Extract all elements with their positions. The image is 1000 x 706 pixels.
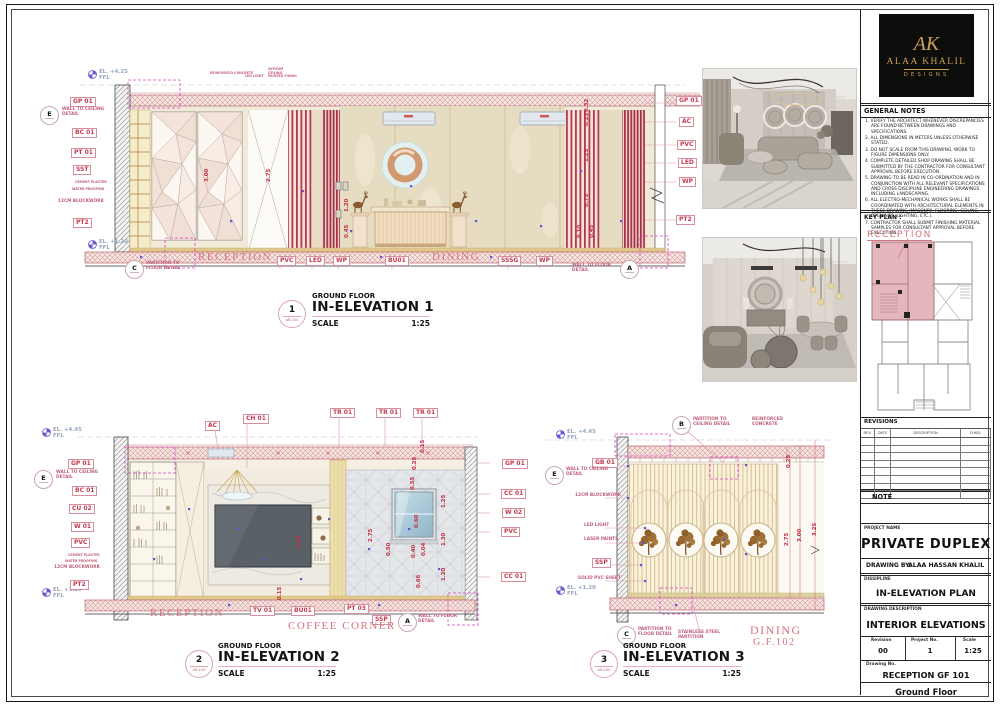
note-item: 1. VERIFY THE ARCHITECT WHENEVER DISCREP…	[865, 119, 989, 135]
reinforced-note: REINFORCED CONCRETE	[752, 418, 794, 428]
laser-note: LASER PAINTS	[584, 538, 618, 543]
material-tag-gp01: GP 01	[502, 459, 528, 469]
material-tag-bu01: BU01	[385, 256, 409, 266]
ceiling-note: GYPSUM CEILING PAINTED FINISH	[268, 68, 298, 79]
dimension: 3.00	[797, 529, 803, 542]
material-tag-pvc: PVC	[501, 527, 520, 537]
level-icon	[556, 586, 565, 595]
material-tag-led: LED	[306, 256, 325, 266]
tiny-note: WATER PROOFING	[65, 560, 97, 564]
detail-note: PARTITION TO FLOOR DETAIL	[146, 262, 194, 272]
elevation1-title: GROUND FLOOR IN-ELEVATION 1 SCALE1:25	[312, 292, 434, 328]
dimension: 0.55	[410, 477, 416, 490]
material-tag-bc01: BC 01	[72, 486, 97, 496]
note-item: 5. DRAWING TO BE READ IN CO-ORDINATION A…	[865, 176, 989, 197]
dimension: 0.40	[411, 545, 417, 558]
material-tag-pt01: PT 01	[71, 148, 96, 158]
detail-circle-e: E	[545, 466, 564, 485]
dimension: 1.30	[441, 533, 447, 546]
detail-circle-e: E	[40, 106, 59, 125]
company-logo: AK ALAA KHALIL DESIGNS	[879, 14, 974, 97]
material-tag-bu01: BU01	[291, 606, 315, 616]
drawing-no-value: RECEPTION GF 101	[861, 670, 991, 680]
dimension: 0.45	[344, 225, 350, 238]
dimension: 1.20	[344, 199, 350, 212]
render-photo-living	[702, 68, 857, 209]
project-no-value: 1	[905, 647, 955, 655]
detail-note: PARTITION TO CEILING DETAIL	[693, 418, 745, 428]
detail-note: WALL TO CEILING DETAIL	[56, 471, 106, 481]
dimension: 3.25	[812, 523, 818, 536]
material-tag-wp: WP	[536, 256, 553, 266]
room-label-coffee-corner: COFFEE CORNER	[288, 620, 396, 632]
level-icon	[42, 428, 51, 437]
material-tag-ac: AC	[679, 117, 694, 127]
dimension: 1.61	[296, 535, 302, 548]
dimension: 0.15	[420, 440, 426, 453]
material-tag-bc01: BC 01	[72, 128, 97, 138]
dimension: 1.25	[584, 149, 590, 162]
revision-row	[861, 438, 991, 446]
blockwork-note: 12CM BLOCKWORK	[575, 494, 621, 499]
material-tag-tr01: TR 01	[376, 408, 401, 418]
dimension: 0.15	[277, 587, 283, 600]
dimension: 0.50	[386, 543, 392, 556]
room-label-reception: RECEPTION	[150, 607, 224, 619]
material-tag-tv01: TV 01	[250, 606, 275, 616]
rev-col: REV.	[861, 429, 875, 437]
dimension: 0.10	[577, 225, 583, 238]
material-tag-pt2: PT2	[676, 215, 695, 225]
scale-value: 1:25	[411, 319, 430, 328]
project-no-cell: Project No. 1	[905, 636, 956, 660]
dimension: 0.60	[414, 515, 420, 528]
elevation2-drawing	[78, 408, 494, 634]
revision-row	[861, 476, 991, 484]
level-ffl: FFL	[99, 76, 128, 82]
project-no-label: Project No.	[911, 638, 938, 643]
general-notes-title: GENERAL NOTES	[864, 107, 926, 115]
material-tag-pt2: PT2	[73, 218, 92, 228]
tiny-note: CEMENT PLASTER	[68, 554, 100, 558]
level-marker: EL. +1.20FFL	[556, 586, 596, 598]
sheet-floor: Ground Floor	[861, 687, 991, 697]
room-label-dining: DINING	[432, 251, 480, 263]
dimension: 3.00	[204, 169, 210, 182]
material-tag-cc01: CC 01	[501, 489, 526, 499]
detail-circle-a: A	[398, 613, 417, 632]
material-tag-pvc: PVC	[677, 140, 696, 150]
room-number: G.F.102	[753, 637, 795, 648]
elevation1-drawing	[80, 70, 702, 276]
scale-cell: Scale 1:25	[955, 636, 991, 660]
render-photo-dining-image	[703, 238, 856, 381]
material-tag-sst: SST	[73, 165, 91, 175]
note-item: 3. DO NOT SCALE FROM THIS DRAWING, WORK …	[865, 148, 989, 159]
ss-partition-note: STAINLESS STEEL PARTITION	[678, 631, 724, 641]
drawing-sheet: EL. +4.25FFL EL. +1.20FFL GP 01 E WALL T…	[0, 0, 1000, 706]
elevation3-title-circle: 3 AR-100	[590, 650, 618, 678]
level-icon	[556, 430, 565, 439]
revision-row	[861, 461, 991, 469]
revisions-table: REV. DATE DESCRIPTION CHKD.	[861, 428, 991, 499]
blockwork-note: 12CM BLOCKWORK	[58, 200, 104, 205]
material-tag-led: LED	[678, 158, 697, 168]
material-tag-cu02: CU 02	[69, 504, 95, 514]
room-label-reception: RECEPTION	[198, 251, 272, 263]
note-item: 4. COMPLETE DETAILED SHOP DRAWING SHALL …	[865, 159, 989, 175]
scale-label: Scale	[963, 638, 976, 643]
dimension: 0.75	[584, 194, 590, 207]
material-tag-ac: AC	[205, 421, 220, 431]
material-tag-ch01: CH 01	[243, 414, 269, 424]
desc-col: DESCRIPTION	[891, 429, 961, 437]
detail-circle-a: A	[620, 260, 639, 279]
material-tag-w01: W 01	[71, 522, 94, 532]
dimension: 0.66	[416, 575, 422, 588]
revision-row	[861, 453, 991, 461]
title-name: IN-ELEVATION 1	[312, 300, 434, 315]
chkd-col: CHKD.	[961, 429, 991, 437]
drawing-description-label: DRAWING DESCRIPTION	[864, 607, 922, 612]
material-tag-wp: WP	[333, 256, 350, 266]
revisions-title: REVISIONS	[864, 419, 898, 425]
level-marker: EL. +1.20FFL	[88, 240, 128, 252]
render-photo-dining	[702, 237, 857, 382]
dimension: 0.25	[584, 113, 590, 126]
detail-note: WALL TO FLOOR DETAIL	[418, 615, 464, 625]
dimension: 1.20	[441, 568, 447, 581]
drawing-no-label: Drawing No.	[866, 662, 896, 667]
level-icon	[88, 70, 97, 79]
level-icon	[88, 240, 97, 249]
tiny-note: CEMENT PLASTER	[75, 181, 107, 185]
discipline-label: DISSIPLINE	[864, 577, 891, 582]
material-tag-gp01: GP 01	[68, 459, 94, 469]
logo-subtitle: DESIGNS	[904, 69, 950, 78]
material-tag-pvc: PVC	[277, 256, 296, 266]
material-tag-gp01: GP 01	[676, 96, 702, 106]
note-title: NOTE	[872, 493, 892, 501]
revision-row	[861, 446, 991, 454]
material-tag-pt03: PT 03	[344, 604, 369, 614]
material-tag-tr01: TR 01	[330, 408, 355, 418]
dimension: 0.45	[589, 225, 595, 238]
pvc-sheet-note: SOLID PVC SHEET	[578, 577, 621, 582]
material-tag-tr01: TR 01	[413, 408, 438, 418]
project-name: PRIVATE DUPLEX	[861, 537, 991, 552]
dimension: 0.25	[786, 455, 792, 468]
revision-row	[861, 484, 991, 492]
blockwork-note: 12CM BLOCKWORK	[54, 566, 100, 571]
material-tag-wp: WP	[679, 177, 696, 187]
detail-circle-c: C	[125, 260, 144, 279]
material-tag-ssp: SSP	[592, 558, 611, 568]
level-icon	[42, 588, 51, 597]
detail-circle-b: B	[672, 416, 691, 435]
revision-label: Revision	[871, 638, 892, 643]
elevation3-title: GROUND FLOOR IN-ELEVATION 3 SCALE1:25	[623, 642, 745, 678]
material-tag-pt2: PT2	[70, 580, 89, 590]
revision-row	[861, 468, 991, 476]
dimension: 2.75	[784, 533, 790, 546]
key-plan-title: KEY PLAN :	[864, 214, 902, 221]
material-tag-pvc: PVC	[71, 538, 90, 548]
key-plan-room-label: RECEPTION	[867, 230, 932, 241]
level-marker: EL. +4.25FFL	[88, 70, 128, 82]
discipline-value: IN-ELEVATION PLAN	[861, 589, 991, 599]
scale-value: 1:25	[955, 647, 991, 655]
detail-note: WALL TO CEILING DETAIL	[566, 468, 616, 478]
material-tag-gp01: GP 01	[70, 97, 96, 107]
dimension: 0.32	[584, 99, 590, 112]
revisions-header: REV. DATE DESCRIPTION CHKD.	[861, 429, 991, 438]
dimension: 1.25	[441, 495, 447, 508]
detail-circle-e: E	[34, 470, 53, 489]
revision-value: 00	[861, 647, 905, 655]
revision-cell: Revision 00	[861, 636, 906, 660]
ceiling-note: LED LIGHT	[245, 75, 264, 79]
key-plan-map	[868, 224, 990, 416]
drawing-description-value: INTERIOR ELEVATIONS	[861, 620, 991, 631]
drawing-by-label: DRAWING BY:	[866, 562, 911, 569]
level-ffl: FFL	[99, 246, 128, 252]
dimension: 2.75	[368, 529, 374, 542]
dimension: 0.25	[412, 457, 418, 470]
note-item: 2. ALL DIMENSIONS IN METERS UNLESS OTHER…	[865, 136, 989, 147]
dimension: 2.75	[266, 169, 272, 182]
elevation1-title-circle: 1 AR-100	[278, 300, 306, 328]
elevation2-title: GROUND FLOOR IN-ELEVATION 2 SCALE1:25	[218, 642, 340, 678]
elevation2-title-circle: 2 AR-100	[185, 650, 213, 678]
led-note: LED LIGHT	[584, 524, 609, 529]
material-tag-w02: W 02	[502, 508, 525, 518]
render-photo-living-image	[703, 69, 856, 208]
detail-note: WALL TO CEILING DETAIL	[62, 108, 112, 118]
material-tag-sssg: SSSG	[498, 256, 521, 266]
room-label-dining: DINING	[750, 623, 802, 638]
scale-label: SCALE	[312, 319, 339, 328]
level-marker: EL. +4.45FFL	[556, 430, 596, 442]
material-tag-cc01: CC 01	[501, 572, 526, 582]
dimension: 0.04	[421, 543, 427, 556]
level-marker: EL. +4.45FFL	[42, 428, 82, 440]
date-col: DATE	[875, 429, 891, 437]
tiny-note: WATER PROOFING	[72, 188, 104, 192]
logo-monogram: AK	[914, 34, 940, 54]
logo-name: ALAA KHALIL	[886, 57, 966, 67]
detail-note: WALL TO FLOOR DETAIL	[572, 264, 616, 274]
project-name-label: PROJECT NAME	[864, 526, 900, 531]
drawing-by-value: ALAA HASSAN KHALIL	[908, 562, 984, 569]
